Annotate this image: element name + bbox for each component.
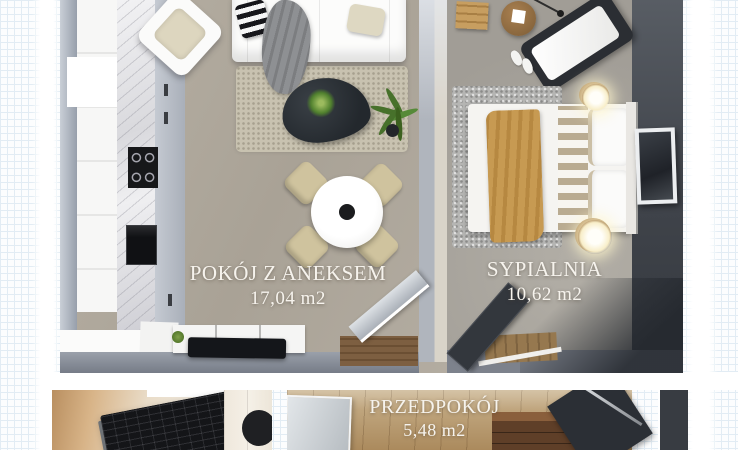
dark-round-object bbox=[242, 410, 272, 446]
striped-bed-runner bbox=[558, 106, 588, 230]
living-room-label: POKÓJ Z ANEKSEM 17,04 m2 bbox=[168, 262, 408, 308]
kitchen-cabinet-door bbox=[67, 57, 117, 107]
coffee-table-plant bbox=[306, 88, 336, 118]
beige-pillow bbox=[346, 3, 386, 37]
bedroom-name: SYPIALNIA bbox=[462, 258, 627, 281]
wooden-crate bbox=[455, 1, 488, 30]
hallway-area: 5,48 m2 bbox=[342, 421, 527, 439]
pendant-lamp bbox=[557, 10, 564, 17]
hallway-label: PRZEDPOKÓJ 5,48 m2 bbox=[342, 396, 527, 439]
bedroom-label: SYPIALNIA 10,62 m2 bbox=[462, 258, 627, 304]
kitchen-oven bbox=[126, 225, 157, 265]
divider-wall-highlight bbox=[419, 0, 447, 120]
hallway-door-frame bbox=[658, 390, 688, 450]
paper-white-gap bbox=[42, 372, 738, 390]
bedside-lamp bbox=[582, 84, 610, 112]
bed-pillow bbox=[588, 108, 630, 166]
kitchen-tall-cabinets bbox=[77, 0, 118, 312]
living-room-name: POKÓJ Z ANEKSEM bbox=[168, 262, 408, 285]
wall-picture-frame bbox=[635, 127, 678, 204]
left-wall bbox=[60, 0, 77, 373]
tan-blanket bbox=[486, 109, 545, 243]
table-centerpiece bbox=[339, 204, 355, 220]
bedroom-area: 10,62 m2 bbox=[462, 285, 627, 304]
hallway-name: PRZEDPOKÓJ bbox=[342, 396, 527, 418]
bathroom-render-partial bbox=[52, 390, 272, 450]
armchair-cushion bbox=[152, 6, 208, 62]
tv bbox=[188, 337, 286, 359]
cabinet-handle bbox=[164, 112, 168, 124]
side-table-napkin bbox=[511, 9, 526, 24]
kitchen-cooktop bbox=[128, 147, 158, 188]
floor-plant-pot bbox=[386, 124, 399, 137]
living-door-threshold bbox=[340, 336, 418, 366]
sideboard-plant bbox=[172, 331, 184, 343]
cabinet-handle bbox=[164, 84, 168, 96]
living-room-area: 17,04 m2 bbox=[168, 289, 408, 308]
bedside-lamp bbox=[578, 220, 612, 254]
floorplan-collage: POKÓJ Z ANEKSEM 17,04 m2 SYPIALNIA 10,62… bbox=[0, 0, 738, 450]
apartment-render-top-view bbox=[60, 0, 683, 373]
